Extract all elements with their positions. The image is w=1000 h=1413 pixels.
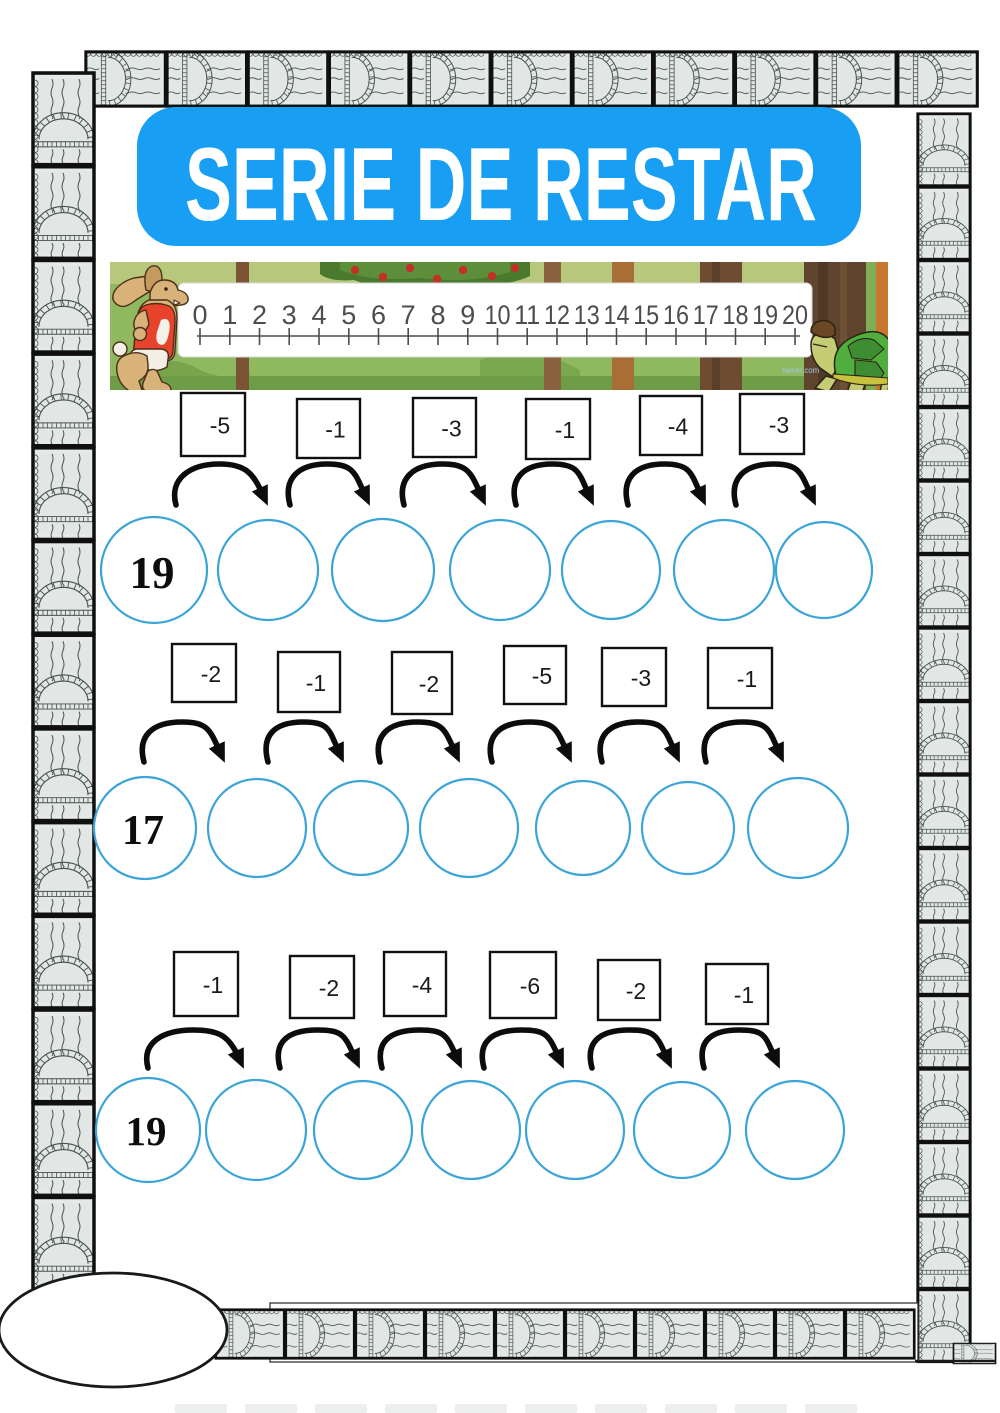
svg-text:-3: -3 (631, 665, 651, 691)
svg-text:8: 8 (430, 300, 445, 330)
svg-text:13: 13 (574, 300, 600, 330)
svg-text:-2: -2 (419, 671, 439, 697)
svg-text:7: 7 (401, 300, 416, 330)
svg-text:19: 19 (752, 300, 778, 330)
svg-text:-1: -1 (203, 972, 223, 998)
svg-text:-5: -5 (532, 663, 552, 689)
svg-text:1: 1 (222, 300, 237, 330)
svg-text:11: 11 (514, 300, 540, 330)
svg-text:17: 17 (693, 300, 719, 330)
svg-text:18: 18 (723, 300, 749, 330)
svg-text:14: 14 (604, 300, 630, 330)
svg-text:-4: -4 (412, 972, 433, 998)
svg-text:-2: -2 (626, 978, 646, 1004)
svg-text:20: 20 (782, 300, 808, 330)
svg-text:-1: -1 (734, 982, 754, 1008)
svg-text:0: 0 (192, 300, 207, 330)
svg-text:6: 6 (371, 300, 386, 330)
svg-text:-1: -1 (306, 670, 326, 696)
svg-text:twinkl.com: twinkl.com (782, 366, 820, 375)
svg-text:-1: -1 (737, 666, 757, 692)
svg-text:16: 16 (663, 300, 689, 330)
svg-text:3: 3 (282, 300, 297, 330)
svg-text:15: 15 (633, 300, 659, 330)
svg-text:9: 9 (460, 300, 475, 330)
svg-text:5: 5 (341, 300, 356, 330)
svg-text:10: 10 (485, 300, 511, 330)
svg-text:-3: -3 (441, 416, 461, 442)
svg-text:19: 19 (130, 548, 175, 598)
svg-text:19: 19 (126, 1108, 167, 1154)
svg-text:-1: -1 (325, 417, 345, 443)
svg-text:2: 2 (252, 300, 267, 330)
svg-text:-1: -1 (555, 417, 575, 443)
svg-text:-6: -6 (520, 973, 540, 999)
svg-text:17: 17 (122, 808, 164, 854)
svg-text:-4: -4 (668, 414, 689, 440)
svg-text:-3: -3 (769, 412, 789, 438)
svg-text:-2: -2 (201, 661, 221, 687)
svg-text:-5: -5 (210, 413, 230, 439)
svg-text:SERIE DE RESTAR: SERIE DE RESTAR (185, 127, 817, 243)
svg-text:12: 12 (544, 300, 570, 330)
svg-text:4: 4 (311, 300, 326, 330)
svg-text:-2: -2 (319, 975, 339, 1001)
